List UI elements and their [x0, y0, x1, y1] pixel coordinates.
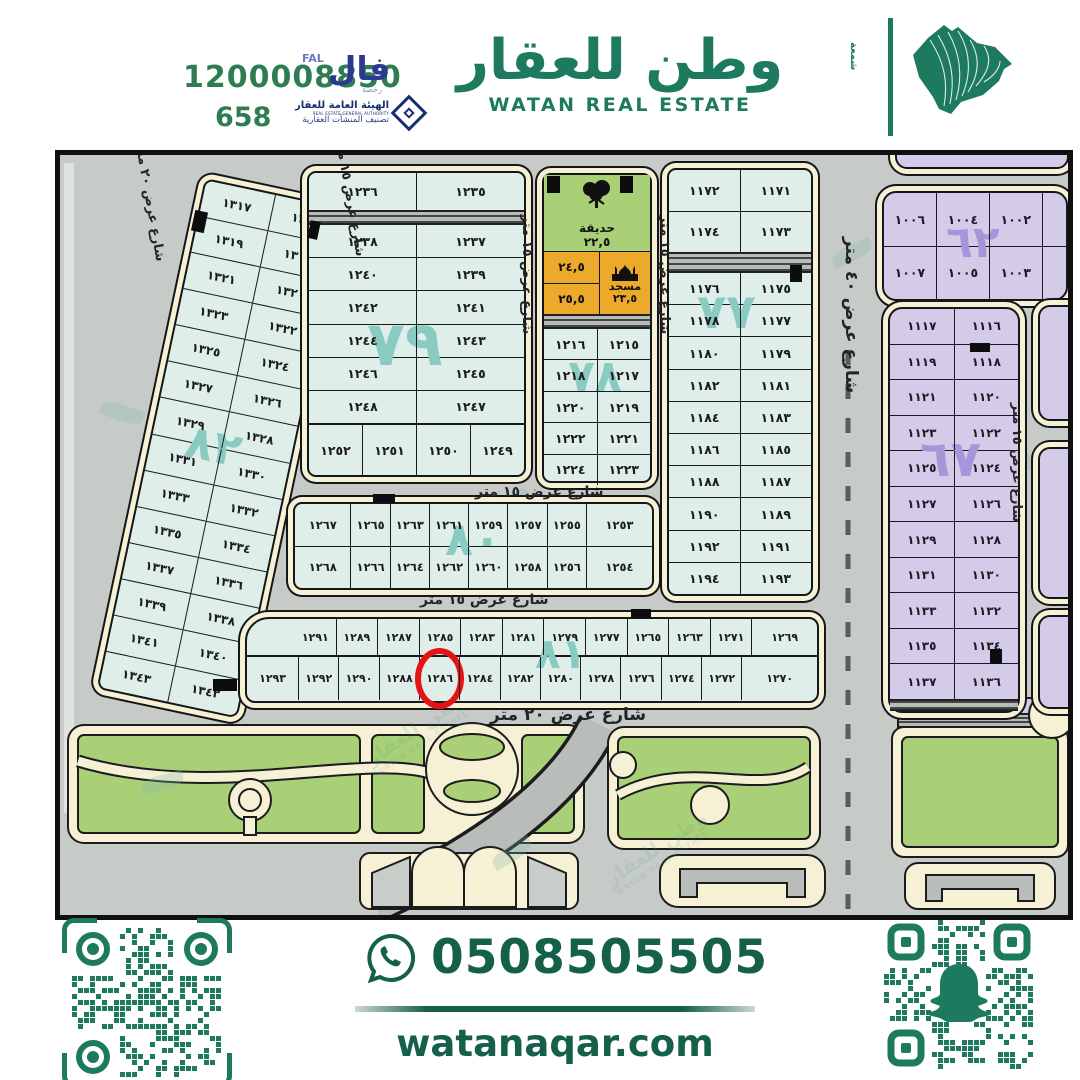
plot-١١١٩[interactable]: ١١١٩: [890, 345, 954, 380]
qr-code-left: [72, 928, 222, 1078]
plot-١٢٧٨[interactable]: ١٢٧٨: [580, 657, 620, 700]
garden-label: حديقة: [579, 221, 615, 235]
plot-١٢٧٦[interactable]: ١٢٧٦: [620, 657, 660, 700]
plot-١١٧٣[interactable]: ١١٧٣: [740, 212, 812, 253]
plot-١١٢٨[interactable]: ١١٢٨: [954, 522, 1019, 557]
plot-١٢٧٠[interactable]: ١٢٧٠: [741, 657, 817, 700]
brand-name-arabic: وطن للعقار: [455, 30, 785, 92]
website-url[interactable]: watanaqar.com: [355, 1022, 755, 1065]
plot-١١٨٢[interactable]: ١١٨٢: [669, 370, 740, 401]
block-80: ١٢٦٧١٢٦٥١٢٦٣١٢٦١١٢٥٩١٢٥٧١٢٥٥١٢٥٣١٢٦٨١٢٦٦…: [293, 502, 654, 590]
partial-block: [1038, 447, 1073, 599]
plot-١٢٣٥[interactable]: ١٢٣٥: [416, 173, 524, 210]
plot-24-5[interactable]: ٢٤,٥: [544, 252, 599, 283]
plot-١٢٢٣[interactable]: ١٢٢٣: [597, 455, 651, 485]
plot-١١١٧[interactable]: ١١١٧: [890, 309, 954, 344]
plot-١٢١٨[interactable]: ١٢١٨: [544, 360, 597, 390]
block-62: ١٠٠٦١٠٠٤١٠٠٢١٠٠٧١٠٠٥١٠٠٣ ٦٢: [882, 191, 1068, 301]
footer-divider: [355, 1006, 755, 1012]
plot-١١٨١[interactable]: ١١٨١: [740, 370, 812, 401]
plot-١٢٥٧[interactable]: ١٢٥٧: [507, 504, 546, 546]
plot-١٢٤١[interactable]: ١٢٤١: [416, 291, 524, 323]
block-78: حديقة ٢٢,٥ ٢٤,٥ ٢٥,٥ مسجد ٢٣,٥ ١٢١٦١٢١٥١…: [542, 173, 652, 483]
block-divider: [544, 314, 650, 329]
plot-١٢٥٠[interactable]: ١٢٥٠: [416, 425, 470, 476]
plot-١٢٦٥[interactable]: ١٢٦٥: [627, 619, 669, 655]
plot-١٢٦٧[interactable]: ١٢٦٧: [295, 504, 350, 546]
plot-١٢٦٠[interactable]: ١٢٦٠: [468, 547, 507, 589]
plot-١١٣٣[interactable]: ١١٣٣: [890, 593, 954, 628]
whatsapp-number[interactable]: 0508505505: [431, 930, 768, 985]
street-label-15m: شارع عرض ١٥ متر: [1009, 403, 1024, 522]
fal-ar-label: فال: [328, 49, 391, 88]
plot-١١٣٧[interactable]: ١١٣٧: [890, 664, 954, 699]
plot-١٢١٥[interactable]: ١٢١٥: [597, 329, 651, 359]
plot-١٢٤٠[interactable]: ١٢٤٠: [309, 258, 416, 290]
plot-١١٨٥[interactable]: ١١٨٥: [740, 434, 812, 465]
plot-١٢٦٩[interactable]: ١٢٦٩: [751, 619, 817, 655]
plot-١٢١٧[interactable]: ١٢١٧: [597, 360, 651, 390]
plot-١٢٤٨[interactable]: ١٢٤٨: [309, 391, 416, 423]
plot-١٢٦٤[interactable]: ١٢٦٤: [390, 547, 429, 589]
plot-١١٩١[interactable]: ١١٩١: [740, 531, 812, 562]
plot-١٢٥٤[interactable]: ١٢٥٤: [586, 547, 652, 589]
plot-١٢٩٢[interactable]: ١٢٩٢: [298, 657, 338, 700]
plot-١٢٤٤[interactable]: ١٢٤٤: [309, 325, 416, 357]
plot-١١٩٠[interactable]: ١١٩٠: [669, 498, 740, 529]
plot-١٢٥٥[interactable]: ١٢٥٥: [547, 504, 586, 546]
map-marker: [631, 609, 651, 618]
map-marker: [620, 176, 633, 193]
plot-١١٧٨[interactable]: ١١٧٨: [669, 305, 740, 336]
mosque-area-value: ٢٣,٥: [613, 293, 637, 305]
saudi-map-icon: [900, 12, 1018, 134]
plot-١٢٧١[interactable]: ١٢٧١: [710, 619, 752, 655]
plot-١٢٥١[interactable]: ١٢٥١: [362, 425, 416, 476]
whatsapp-icon: [365, 932, 417, 984]
brand-vertical-word: شمعة: [848, 42, 859, 70]
plot-١٢٢٠[interactable]: ١٢٢٠: [544, 392, 597, 422]
plot-١٢٩٣[interactable]: ١٢٩٣: [247, 657, 298, 700]
plot-١٢٤٧[interactable]: ١٢٤٧: [416, 391, 524, 423]
plot-١٢٢٢[interactable]: ١٢٢٢: [544, 423, 597, 453]
authority-name-ar: الهيئة العامة للعقار: [295, 100, 389, 112]
whatsapp-contact[interactable]: 0508505505: [365, 930, 768, 985]
fal-en-label: FAL: [302, 52, 324, 65]
plot-١١٩٣[interactable]: ١١٩٣: [740, 563, 812, 594]
block-77: ١١٧٢١١٧١١١٧٤١١٧٣ ١١٧٦١١٧٥١١٧٨١١٧٧١١٨٠١١٧…: [667, 168, 813, 596]
block-79: ١٢٣٦١٢٣٥ ١٢٣٨١٢٣٧١٢٤٠١٢٣٩١٢٤٢١٢٤١١٢٤٤١٢٤…: [307, 171, 526, 477]
plot-١١٣١[interactable]: ١١٣١: [890, 558, 954, 593]
block-divider: [309, 210, 524, 225]
plot-١١١٦[interactable]: ١١١٦: [954, 309, 1019, 344]
plot-١٢٦٢[interactable]: ١٢٦٢: [429, 547, 468, 589]
plot-١١٨٦[interactable]: ١١٨٦: [669, 434, 740, 465]
map-marker: [990, 649, 1002, 664]
plot-١١٧٧[interactable]: ١١٧٧: [740, 305, 812, 336]
plot-١١٩٢[interactable]: ١١٩٢: [669, 531, 740, 562]
plot-١٠٠٦[interactable]: ١٠٠٦: [884, 193, 936, 246]
plot-١١٨٣[interactable]: ١١٨٣: [740, 402, 812, 433]
street-label-15m: شارع عرض ١٥ متر: [475, 484, 604, 500]
plot-١٢٣٦[interactable]: ١٢٣٦: [309, 173, 416, 210]
plot-١٢٥٦[interactable]: ١٢٥٦: [547, 547, 586, 589]
street-label-20m: شارع عرض ٢٠ متر: [490, 705, 646, 725]
plot-١٠٠٧[interactable]: ١٠٠٧: [884, 247, 936, 300]
plot-١١٨٩[interactable]: ١١٨٩: [740, 498, 812, 529]
plot-١١٣٥[interactable]: ١١٣٥: [890, 629, 954, 664]
plot-١٢٩٠[interactable]: ١٢٩٠: [338, 657, 378, 700]
plot-١٢١٦[interactable]: ١٢١٦: [544, 329, 597, 359]
plot-١٢٥٩[interactable]: ١٢٥٩: [468, 504, 507, 546]
block-81: ١٢٩١١٢٨٩١٢٨٧١٢٨٥١٢٨٣١٢٨١١٢٧٩١٢٧٧١٢٦٥١٢٦٣…: [245, 617, 819, 703]
rega-authority-logo: الهيئة العامة للعقار REAL ESTATE GENERAL…: [295, 98, 424, 128]
fal-license-logo: FALفال رخصة: [302, 52, 382, 94]
street-label-15m: شارع عرض ١٥ متر: [420, 592, 549, 608]
plot-١١٧٦[interactable]: ١١٧٦: [669, 273, 740, 304]
plot-١٢٧٢[interactable]: ١٢٧٢: [701, 657, 741, 700]
plot-١٢٧٤[interactable]: ١٢٧٤: [661, 657, 701, 700]
plot-١١٣٠[interactable]: ١١٣٠: [954, 558, 1019, 593]
plot-١١٨٧[interactable]: ١١٨٧: [740, 466, 812, 497]
brand-name-english: WATAN REAL ESTATE: [455, 94, 785, 116]
plot-١٢٦٣[interactable]: ١٢٦٣: [390, 504, 429, 546]
plot-١١٧٩[interactable]: ١١٧٩: [740, 337, 812, 368]
plot-١٢٨٧[interactable]: ١٢٨٧: [377, 619, 419, 655]
plot-١٢٦٥[interactable]: ١٢٦٥: [350, 504, 389, 546]
plot-١١٧٤[interactable]: ١١٧٤: [669, 212, 740, 253]
authority-diamond-icon: [394, 98, 424, 128]
plot-١٢٨٤[interactable]: ١٢٨٤: [459, 657, 499, 700]
plot-١٠٠٣[interactable]: ١٠٠٣: [989, 247, 1042, 300]
plot-١٢٨٣[interactable]: ١٢٨٣: [460, 619, 502, 655]
plot-١٢٢٤[interactable]: ١٢٢٤: [544, 455, 597, 485]
plot-١٢٣٩[interactable]: ١٢٣٩: [416, 258, 524, 290]
plot-١٢٢١[interactable]: ١٢٢١: [597, 423, 651, 453]
plot-١٢٩١[interactable]: ١٢٩١: [295, 619, 336, 655]
plot-١١٧١[interactable]: ١١٧١: [740, 170, 812, 211]
plot-١٢٦٣[interactable]: ١٢٦٣: [668, 619, 710, 655]
map-marker: [970, 343, 990, 352]
plot-١٠٠٢[interactable]: ١٠٠٢: [989, 193, 1042, 246]
plot-١٢٤٣[interactable]: ١٢٤٣: [416, 325, 524, 357]
plot-١٢٨٠[interactable]: ١٢٨٠: [540, 657, 580, 700]
plot-25-5[interactable]: ٢٥,٥: [544, 283, 599, 315]
partial-block: [1038, 305, 1073, 421]
plot-١٠٠٤[interactable]: ١٠٠٤: [936, 193, 989, 246]
plot-١٢٤٩[interactable]: ١٢٤٩: [470, 425, 524, 476]
plot-١١٢٩[interactable]: ١١٢٩: [890, 522, 954, 557]
plot-١٢٨٢[interactable]: ١٢٨٢: [500, 657, 540, 700]
plot-١٢٦٦[interactable]: ١٢٦٦: [350, 547, 389, 589]
plot-highlighted-١٢٨٦[interactable]: ١٢٨٦: [419, 657, 459, 700]
street-label-15m: شارع عرض ١٥ متر: [657, 215, 672, 334]
map-marker: [790, 265, 802, 282]
mosque-area: مسجد ٢٣,٥: [599, 252, 650, 314]
plot-١١٣٢[interactable]: ١١٣٢: [954, 593, 1019, 628]
plot-١٢٤٢[interactable]: ١٢٤٢: [309, 291, 416, 323]
plot-١٢٤٥[interactable]: ١٢٤٥: [416, 358, 524, 390]
mosque-icon: [610, 261, 640, 281]
garden-area-value: ٢٢,٥: [584, 235, 611, 249]
map-marker: [373, 494, 395, 503]
street-label-15m: شارع عرض ١٥ متر: [519, 215, 534, 334]
partial-block: [895, 150, 1069, 169]
authority-tagline: تصنيف المنشآت العقارية: [295, 116, 389, 126]
plot-١٢٣٧[interactable]: ١٢٣٧: [416, 225, 524, 257]
map-marker: [213, 679, 237, 691]
block-divider: [890, 699, 1018, 711]
brand-logo: وطن للعقار WATAN REAL ESTATE: [455, 30, 785, 116]
plot-١٢١٩[interactable]: ١٢١٩: [597, 392, 651, 422]
plot-١٢٨١[interactable]: ١٢٨١: [502, 619, 544, 655]
plot-١١٨٠[interactable]: ١١٨٠: [669, 337, 740, 368]
plot-١١٢٧[interactable]: ١١٢٧: [890, 487, 954, 522]
flyer-canvas: 1200008850 658 FALفال رخصة الهيئة العامة…: [0, 0, 1080, 1080]
snapchat-qr-code: [884, 920, 1034, 1070]
plot-١٢٤٦[interactable]: ١٢٤٦: [309, 358, 416, 390]
partial-block: [1038, 615, 1073, 709]
plot-١٠٠٥[interactable]: ١٠٠٥: [936, 247, 989, 300]
plot-١١٣٤[interactable]: ١١٣٤: [954, 629, 1019, 664]
plot-١٢٨٨[interactable]: ١٢٨٨: [379, 657, 419, 700]
plot-١٢٦١[interactable]: ١٢٦١: [429, 504, 468, 546]
plot-١١٧٢[interactable]: ١١٧٢: [669, 170, 740, 211]
plot-١٢٧٩[interactable]: ١٢٧٩: [543, 619, 585, 655]
street-label-40m: شارع عرض ٤٠ متر: [841, 237, 861, 393]
plot-١٢٥٢[interactable]: ١٢٥٢: [309, 425, 362, 476]
license-number: 658: [215, 102, 271, 133]
plot-١٢٦٨[interactable]: ١٢٦٨: [295, 547, 350, 589]
plot-١١٨٤[interactable]: ١١٨٤: [669, 402, 740, 433]
plot-١٢٥٣[interactable]: ١٢٥٣: [586, 504, 652, 546]
brand-divider-bar: [888, 18, 893, 136]
plot-١٢٧٧[interactable]: ١٢٧٧: [585, 619, 627, 655]
map-marker: [547, 176, 560, 193]
master-plan-map: وطن للعقارWATAN REAL ESTATE وطن للعقارWA…: [55, 150, 1073, 920]
plot-١٢٥٨[interactable]: ١٢٥٨: [507, 547, 546, 589]
plot-١١٩٤[interactable]: ١١٩٤: [669, 563, 740, 594]
plot-١١٨٨[interactable]: ١١٨٨: [669, 466, 740, 497]
plot-١١٣٦[interactable]: ١١٣٦: [954, 664, 1019, 699]
plot-١١٢٣[interactable]: ١١٢٣: [890, 416, 954, 451]
plot-١٢٨٩[interactable]: ١٢٨٩: [336, 619, 378, 655]
tree-icon: [580, 179, 614, 209]
plot-١١٢١[interactable]: ١١٢١: [890, 380, 954, 415]
plot-١١٢٥[interactable]: ١١٢٥: [890, 451, 954, 486]
snapchat-ghost-icon: [929, 964, 990, 1022]
